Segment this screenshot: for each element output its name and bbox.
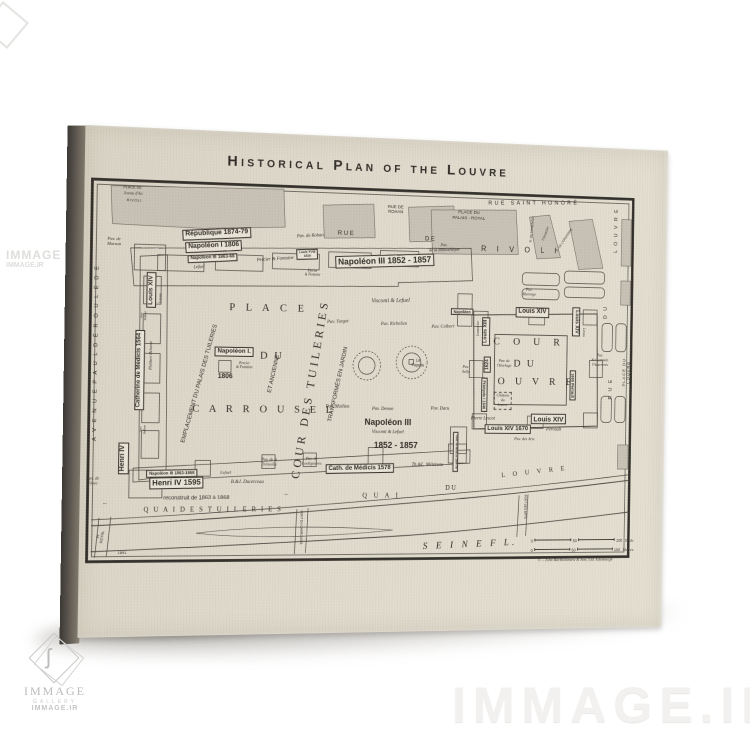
map-label: D U — [513, 358, 535, 371]
map-label: Louis XIV — [572, 307, 580, 336]
map-label: D U — [603, 305, 609, 319]
scale-tick: 0 — [531, 548, 533, 553]
map-label: ← — [102, 500, 108, 507]
map-label: Pav. de la Bibliothèque — [429, 242, 460, 253]
map-label: Louis XIV 1670 — [485, 424, 531, 434]
map-label: Q U A I D E S T U I L E R I E S — [143, 505, 282, 514]
map-label: Th.&L. Métézeau — [412, 463, 444, 469]
product-photo: Historical Plan of the Louvre — [0, 0, 750, 750]
map-label: COUR DES TUILERIES — [288, 298, 331, 479]
map-label: Napoléon III — [364, 417, 411, 428]
map-label: Cath. de Médicis 1578 — [326, 463, 394, 474]
immage-logo-diamonds: ʃ — [32, 636, 78, 682]
map-label: République 1874-79 — [182, 227, 251, 240]
map-label: R I V O L I — [481, 244, 561, 255]
map-label: L O U V R E — [501, 464, 568, 479]
map-label: Lefuel — [220, 470, 231, 475]
map-label: C A R R O U S E L — [192, 403, 335, 417]
map-label: Percier & Fontaine — [236, 361, 253, 370]
map-label: Pav. St Germain l'Auxerrois — [591, 354, 608, 368]
map-label: PONT DU CARROUSEL — [298, 511, 302, 545]
map-label: Louis XIV — [516, 307, 550, 318]
map-label: D U — [445, 484, 456, 492]
map-label: Château du Louvre — [494, 392, 512, 410]
map-label: Pierre Lescot — [471, 417, 495, 423]
map-label: Jean Bullant — [140, 425, 147, 434]
map-label: Jean Bullant — [140, 311, 147, 320]
map-label: Perrault — [546, 428, 561, 434]
map-label: Percier & Fontaine — [257, 256, 294, 264]
scale-tick: 100 — [614, 547, 620, 552]
scale-line — [535, 539, 571, 540]
scale-line — [535, 549, 570, 550]
map-label: Pav. Sully — [462, 365, 470, 375]
scale-metres: 0 50 100 Metres — [531, 544, 634, 554]
flame-icon: ʃ — [46, 644, 51, 670]
map-label: Q U A I — [362, 492, 400, 500]
map-label: Napoléon I 1806 — [185, 240, 242, 253]
map-label: Catherine de Médicis 1564 — [134, 330, 144, 410]
corner-watermark-mark — [0, 1, 29, 49]
map-label: Pav. des Arts — [514, 436, 534, 441]
map-label: Cath. de Médicis 1564-78 — [453, 432, 459, 472]
map-label: Louis XIII — [482, 317, 490, 346]
map-label: 1665 Perrault — [569, 370, 576, 400]
map-label: Pav. Mollien — [326, 405, 350, 411]
map-label: S E I N E F L. — [423, 537, 518, 552]
map-label: Philibert Delorme — [149, 341, 154, 370]
scale-unit: Metres — [623, 547, 634, 552]
map-label: R U E — [608, 378, 614, 399]
scale-line — [579, 539, 615, 540]
map-label: R. DE MARENGO — [529, 216, 535, 242]
scale-tick: 0 — [531, 538, 533, 543]
scale-tick: 50 — [572, 547, 576, 552]
canvas-face: Historical Plan of the Louvre — [77, 125, 668, 638]
map-label: RUE SAINT HONORÉ — [488, 201, 579, 208]
map-label: Louis XIV — [531, 414, 566, 425]
map-label: R U E — [338, 230, 354, 238]
map-label: PONT DES ARTS — [522, 495, 526, 519]
scale-unit: Yards — [625, 538, 634, 543]
map-label: C O U R — [493, 336, 565, 350]
map-label: → — [283, 491, 289, 498]
immage-logo: ʃ IMMAGE GALLERY IMMAGE.IR — [10, 636, 100, 712]
immage-logo-site: IMMAGE.IR — [10, 705, 100, 712]
scale-tick: 50 — [573, 538, 577, 543]
map-label: Jeanne d'Arc — [124, 191, 143, 196]
map-label: Pav. Turgot — [327, 319, 349, 325]
map-label: Pav. de l'Horloge — [497, 359, 511, 369]
map-label: Levau — [159, 293, 164, 303]
map-label: reconstruit de 1863 à 1868 — [163, 495, 229, 502]
map-label: P L A C E — [229, 301, 308, 315]
map-label: Henri IV 1595 — [149, 477, 203, 490]
map-label: Levau — [582, 328, 586, 337]
map-label: François I 1546 — [481, 378, 488, 412]
map-label: PLACE DU PALAIS - ROYAL — [452, 210, 485, 222]
map-label: 1624 — [484, 356, 492, 372]
map-label: RUE DE ROHAN — [388, 204, 404, 215]
immage-watermark: IMMAGE.IR — [452, 676, 750, 734]
map-label: Percier & Fontaine — [305, 268, 321, 277]
map-label: Pav. de Marsan — [107, 236, 121, 247]
map-label: l'Oratoire — [542, 226, 551, 241]
map-label: D U — [260, 350, 284, 363]
map-label: Pav. Denon — [372, 407, 393, 413]
map-label: R. DE L'ORATOIRE — [555, 228, 573, 253]
map-label: L O U V R E — [482, 375, 576, 388]
map-label: Pav. de Rohan — [297, 233, 324, 240]
map-label: Pav. Daru — [431, 407, 450, 413]
map-label: Napoléon III 1852 - 1857 — [335, 254, 434, 269]
map-label: L O U V R E — [613, 208, 619, 253]
map-label: Louis XIV — [146, 272, 156, 307]
map-label: La Fayette — [412, 359, 425, 369]
canvas-print: Historical Plan of the Louvre — [60, 124, 672, 638]
map-label: Pav. Richelieu — [381, 322, 407, 328]
map-label: Pav. Marengo — [522, 288, 536, 298]
scale-bars: 0 50 100 Yards 0 50 100 Metres — [531, 535, 634, 555]
map-label: 1852 - 1857 — [374, 440, 418, 450]
map-label: 1891 — [118, 551, 127, 556]
map-label: EMPLACEMENT DU PALAIS DES TUILERIES — [180, 324, 219, 444]
map-label: Louis XVIII 1816 — [296, 249, 318, 260]
map-label: Pav. Colbert — [432, 325, 455, 331]
map-label: PLACE DE — [123, 185, 141, 190]
map-label: Pav. de Lesdiguières — [302, 457, 322, 467]
side-watermark: IMMAGE IMMAGE.IR — [6, 248, 61, 269]
map-label: Lefuel — [193, 264, 204, 270]
map-label: Visconti & Lefuel — [372, 430, 404, 436]
scale-line — [577, 548, 612, 549]
map-label: Lemercier — [476, 321, 480, 336]
map-label: Henri IV — [118, 442, 129, 474]
map-label: B.&J. Ducerceau — [231, 480, 264, 486]
map-label: RIVOLI — [127, 198, 143, 203]
map-label: Napoléon — [451, 308, 474, 315]
map-label: A V E N U E P A U L D É R O U L È D E — [92, 264, 101, 441]
map-label: Pav. de Flore — [86, 476, 99, 487]
map-label: PLACE DU LOUVRE — [622, 351, 632, 393]
map-label: Napoléon I. — [214, 347, 253, 358]
map-label: 1806 — [218, 373, 233, 381]
map-label: Pav. de la Trémoille — [262, 458, 278, 468]
map-label: Napoléon III 1863-68 — [187, 253, 237, 263]
map-label: Visconti & Lefuel — [371, 298, 409, 305]
map-label: Pt ROYAL — [95, 530, 106, 544]
scale-tick: 100 — [616, 538, 622, 543]
immage-logo-text: IMMAGE — [10, 684, 100, 699]
